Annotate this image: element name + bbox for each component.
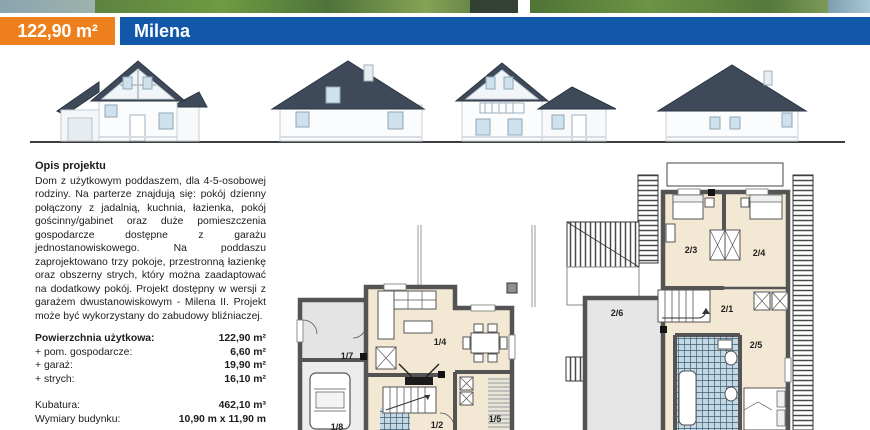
spec-value: 6,60 m² [230, 347, 266, 358]
area-badge-text: 122,90 m² [17, 21, 97, 42]
elevation-side-left [268, 57, 438, 142]
room-label-hall: 1/2 [431, 420, 444, 430]
spec-value: 122,90 m² [219, 333, 266, 344]
photo-gap [518, 0, 530, 13]
brochure-page: { "header": { "area": "122,90 m²", "titl… [0, 0, 870, 430]
room-label-utility: 1/7 [341, 351, 354, 361]
description-heading: Opis projektu [35, 160, 266, 172]
spec-value: 19,90 m² [224, 360, 266, 371]
spec-value: 16,10 m² [224, 374, 266, 385]
spec-label: + garaż: [35, 360, 73, 371]
spec-label: Powierzchnia użytkowa: [35, 333, 155, 344]
elevation-back [452, 57, 622, 142]
spec-value: 10,90 m x 11,90 m [179, 414, 266, 425]
description-body: Dom z użytkowym poddaszem, dla 4-5-osobo… [35, 175, 266, 323]
spec-row-attic: + strych: 16,10 m² [35, 374, 266, 388]
room-label-bedroom-right: 2/4 [753, 248, 766, 258]
room-label-kitchen: 1/5 [489, 414, 502, 424]
header-photo-strip [0, 0, 870, 13]
spec-row-dimensions: Wymiary budynku: 10,90 m x 11,90 m [35, 414, 266, 428]
elevation-front [55, 57, 220, 142]
photo-water-right [828, 0, 870, 13]
spec-value: 462,10 m³ [219, 400, 266, 411]
room-label-garage: 1/8 [331, 422, 344, 430]
photo-water-left [0, 0, 95, 13]
spec-row-garage: + garaż: 19,90 m² [35, 360, 266, 374]
room-label-living: 1/4 [434, 337, 447, 347]
room-label-bedroom-bottom: 2/5 [750, 340, 763, 350]
spec-label: Wymiary budynku: [35, 414, 120, 425]
title-bar: Milena [120, 17, 870, 45]
specs-table: Powierzchnia użytkowa: 122,90 m² + pom. … [35, 333, 266, 428]
room-label-bedroom-left: 2/3 [685, 245, 698, 255]
elevation-side-right [652, 57, 812, 142]
room-label-upper-hall: 2/1 [721, 304, 734, 314]
project-title: Milena [134, 21, 190, 42]
spec-row-volume: Kubatura: 462,10 m³ [35, 400, 266, 414]
area-badge: 122,90 m² [0, 17, 115, 45]
ground-floor-plan: 1/7 1/4 1/2 1/5 1/8 [288, 225, 548, 430]
spec-row-utility: + pom. gospodarcze: 6,60 m² [35, 347, 266, 361]
spec-label: Kubatura: [35, 400, 80, 411]
spec-label: + strych: [35, 374, 75, 385]
room-label-attic: 2/6 [611, 308, 624, 318]
spec-row-usable-area: Powierzchnia użytkowa: 122,90 m² [35, 333, 266, 347]
photo-grass-right [530, 0, 828, 13]
upper-floor-plan: 2/3 2/4 2/1 2/6 2/5 [558, 158, 843, 430]
photo-grass-left [95, 0, 518, 13]
description-column: Opis projektu Dom z użytkowym poddaszem,… [35, 160, 266, 428]
spec-label: + pom. gospodarcze: [35, 347, 132, 358]
